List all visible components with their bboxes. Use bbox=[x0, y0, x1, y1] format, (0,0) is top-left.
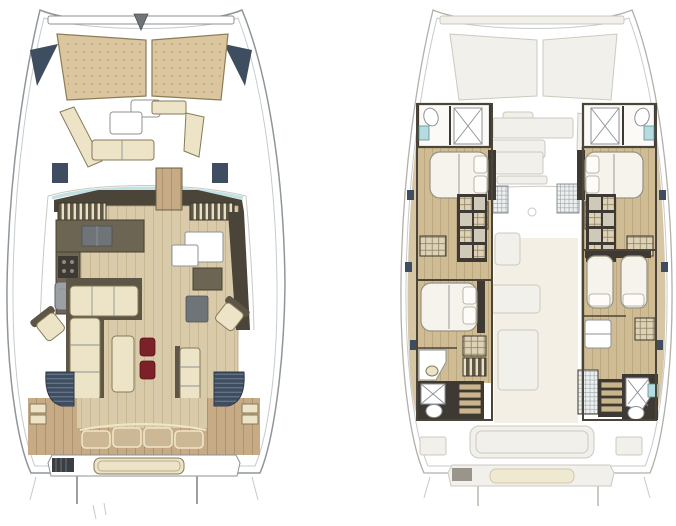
ghost-chaise bbox=[495, 233, 520, 265]
port-vanity-stool bbox=[426, 366, 438, 376]
ghost-sofa bbox=[495, 152, 543, 174]
saloon-table bbox=[112, 336, 134, 392]
deck-plan bbox=[7, 10, 285, 519]
sofa-cushion-top bbox=[70, 286, 138, 316]
catamaran-floorplan-image bbox=[0, 0, 676, 526]
swim-step-port-2 bbox=[30, 415, 46, 424]
port-hull-stairs bbox=[456, 381, 484, 419]
ghost-engine-hatch-port bbox=[420, 437, 446, 455]
ghost-sunpad-port bbox=[450, 34, 537, 100]
swim-step-stbd-1 bbox=[242, 404, 258, 413]
ghost-sunpad-starboard bbox=[543, 34, 617, 100]
ghost-bench bbox=[488, 285, 540, 313]
fwd-cockpit-seat bbox=[92, 140, 154, 160]
galley-stove bbox=[58, 256, 78, 278]
port-aft-pillow-2 bbox=[463, 307, 476, 324]
port-fwd-pillow-2 bbox=[474, 176, 487, 193]
transom-cushion bbox=[94, 458, 184, 474]
stbd-hull-stairs bbox=[598, 379, 626, 417]
nav-seat bbox=[172, 245, 198, 266]
swim-step-stbd-2 bbox=[242, 415, 258, 424]
port-aft-pillow-1 bbox=[463, 287, 476, 304]
port-aft-locker-2 bbox=[463, 358, 486, 376]
side-gate-port bbox=[52, 163, 68, 183]
port-aft-toilet bbox=[426, 405, 442, 418]
ghost-table bbox=[497, 176, 547, 184]
companionway-wood bbox=[156, 168, 182, 210]
port-hull bbox=[405, 104, 496, 420]
cabin-plan bbox=[401, 10, 672, 506]
front-lockers-port bbox=[58, 203, 106, 220]
pouf-2 bbox=[140, 361, 155, 379]
pouf-1 bbox=[140, 338, 155, 356]
stbd-fwd-pillow-1 bbox=[586, 156, 599, 173]
front-lockers-starboard bbox=[190, 203, 234, 220]
nav-cabinet bbox=[193, 268, 222, 290]
side-gate-starboard bbox=[212, 163, 228, 183]
port-wardrobe-2 bbox=[420, 236, 446, 256]
foredeck-sunpad-starboard bbox=[152, 34, 228, 100]
port-inner-lockers bbox=[457, 194, 487, 262]
port-aft-locker-1 bbox=[463, 336, 486, 356]
stbd-fwd-pillow-2 bbox=[586, 176, 599, 193]
saloon-gray-seat bbox=[186, 296, 208, 322]
aft-bench-seat-4 bbox=[175, 431, 203, 448]
bench-starboard bbox=[180, 348, 200, 404]
mooring-lines bbox=[30, 477, 258, 519]
bench-starboard-back bbox=[175, 346, 180, 404]
ghost-transom-cushion bbox=[490, 469, 574, 483]
aft-bench-seat-1 bbox=[82, 431, 110, 448]
stbd-aft-locker bbox=[635, 318, 655, 340]
port-fwd-sink bbox=[419, 126, 429, 140]
swim-step-port-1 bbox=[30, 404, 46, 413]
port-fwd-pillow-1 bbox=[474, 156, 487, 173]
ghost-galley bbox=[493, 118, 573, 138]
transom-grill bbox=[52, 458, 74, 472]
floorplan-canvas bbox=[0, 0, 676, 526]
aft-bench-seat-2 bbox=[113, 428, 141, 447]
stbd-aft-toilet bbox=[628, 407, 644, 420]
fwd-cockpit-table bbox=[110, 112, 142, 134]
stbd-grid-locker bbox=[578, 370, 598, 414]
stairs-down-starboard bbox=[557, 184, 579, 213]
ghost-bow-crossbeam bbox=[440, 16, 624, 24]
stbd-fwd-sink bbox=[644, 126, 654, 140]
starboard-hull bbox=[577, 104, 668, 420]
ghost-engine-hatch-stbd bbox=[616, 437, 642, 455]
foredeck-sunpad-port bbox=[57, 34, 146, 100]
foredeck-bench-small bbox=[152, 101, 186, 114]
aft-bench-seat-3 bbox=[144, 428, 172, 447]
ghost-lounge-aft bbox=[498, 330, 538, 390]
